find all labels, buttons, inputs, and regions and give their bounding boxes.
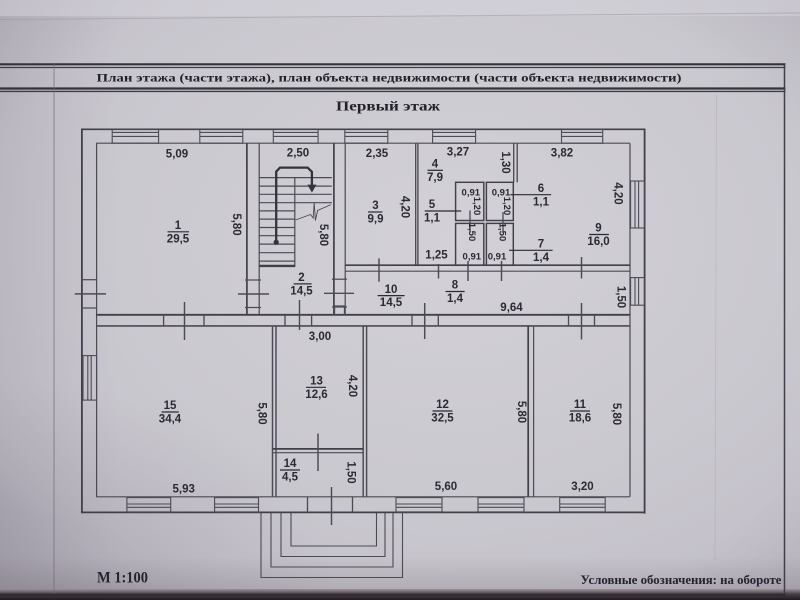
svg-text:12: 12 [436, 399, 449, 411]
svg-text:7: 7 [538, 239, 544, 251]
svg-text:2,50: 2,50 [287, 148, 309, 160]
svg-text:14: 14 [284, 458, 297, 470]
svg-text:1,4: 1,4 [533, 252, 550, 264]
svg-text:М 1:100: М 1:100 [97, 570, 148, 587]
svg-text:15: 15 [164, 400, 177, 412]
svg-text:Условные обозначения: на оборо: Условные обозначения: на обороте [581, 572, 782, 587]
svg-text:16,0: 16,0 [587, 236, 609, 248]
svg-text:14,5: 14,5 [290, 286, 313, 298]
svg-text:14,5: 14,5 [380, 297, 403, 309]
svg-text:5,80: 5,80 [256, 402, 268, 424]
svg-text:3,20: 3,20 [571, 481, 593, 493]
svg-text:1,50: 1,50 [466, 223, 477, 242]
svg-text:План этажа (части этажа), план: План этажа (части этажа), план объекта н… [97, 70, 682, 84]
svg-text:4: 4 [432, 159, 439, 171]
svg-text:4,20: 4,20 [612, 182, 624, 204]
svg-text:3,00: 3,00 [309, 331, 331, 343]
svg-text:5,80: 5,80 [317, 224, 329, 246]
svg-text:32,5: 32,5 [431, 413, 454, 425]
svg-text:1,20: 1,20 [501, 197, 512, 216]
svg-text:1: 1 [175, 220, 182, 232]
svg-text:5: 5 [429, 199, 436, 211]
svg-text:9,9: 9,9 [368, 214, 384, 226]
svg-text:0,91: 0,91 [463, 252, 482, 263]
svg-text:12,6: 12,6 [305, 389, 327, 401]
svg-text:3: 3 [372, 200, 378, 212]
svg-text:3,82: 3,82 [551, 148, 573, 160]
svg-text:0,91: 0,91 [488, 252, 507, 263]
svg-text:1,30: 1,30 [499, 151, 511, 173]
svg-text:1,1: 1,1 [533, 196, 550, 208]
svg-text:5,80: 5,80 [515, 401, 527, 423]
svg-text:1,50: 1,50 [497, 223, 508, 242]
svg-text:5,93: 5,93 [173, 484, 195, 496]
svg-text:2: 2 [298, 272, 304, 284]
svg-text:3,27: 3,27 [447, 147, 469, 159]
svg-text:1,4: 1,4 [447, 293, 464, 305]
svg-text:1,50: 1,50 [345, 461, 357, 483]
svg-text:2,35: 2,35 [366, 148, 389, 160]
svg-text:6: 6 [538, 183, 544, 195]
svg-text:1,1: 1,1 [424, 213, 441, 225]
svg-text:9: 9 [595, 223, 601, 235]
svg-text:5,60: 5,60 [435, 481, 457, 493]
svg-text:5,80: 5,80 [230, 213, 242, 235]
svg-text:11: 11 [574, 399, 587, 411]
svg-text:29,5: 29,5 [167, 233, 190, 245]
svg-text:4,20: 4,20 [399, 196, 411, 218]
svg-text:8: 8 [452, 280, 459, 292]
svg-text:1,20: 1,20 [471, 197, 482, 216]
svg-text:4,20: 4,20 [346, 375, 358, 397]
svg-text:Первый этаж: Первый этаж [336, 98, 440, 113]
svg-text:7,9: 7,9 [427, 172, 443, 184]
svg-text:13: 13 [310, 376, 323, 388]
svg-text:1,50: 1,50 [615, 286, 627, 308]
svg-text:5,80: 5,80 [610, 403, 622, 425]
svg-text:9,64: 9,64 [500, 302, 523, 314]
svg-text:18,6: 18,6 [569, 413, 591, 425]
svg-text:10: 10 [385, 284, 398, 296]
svg-text:5,09: 5,09 [166, 149, 188, 161]
svg-text:1,25: 1,25 [425, 249, 448, 261]
svg-text:34,4: 34,4 [159, 414, 182, 426]
svg-text:4,5: 4,5 [282, 472, 299, 484]
